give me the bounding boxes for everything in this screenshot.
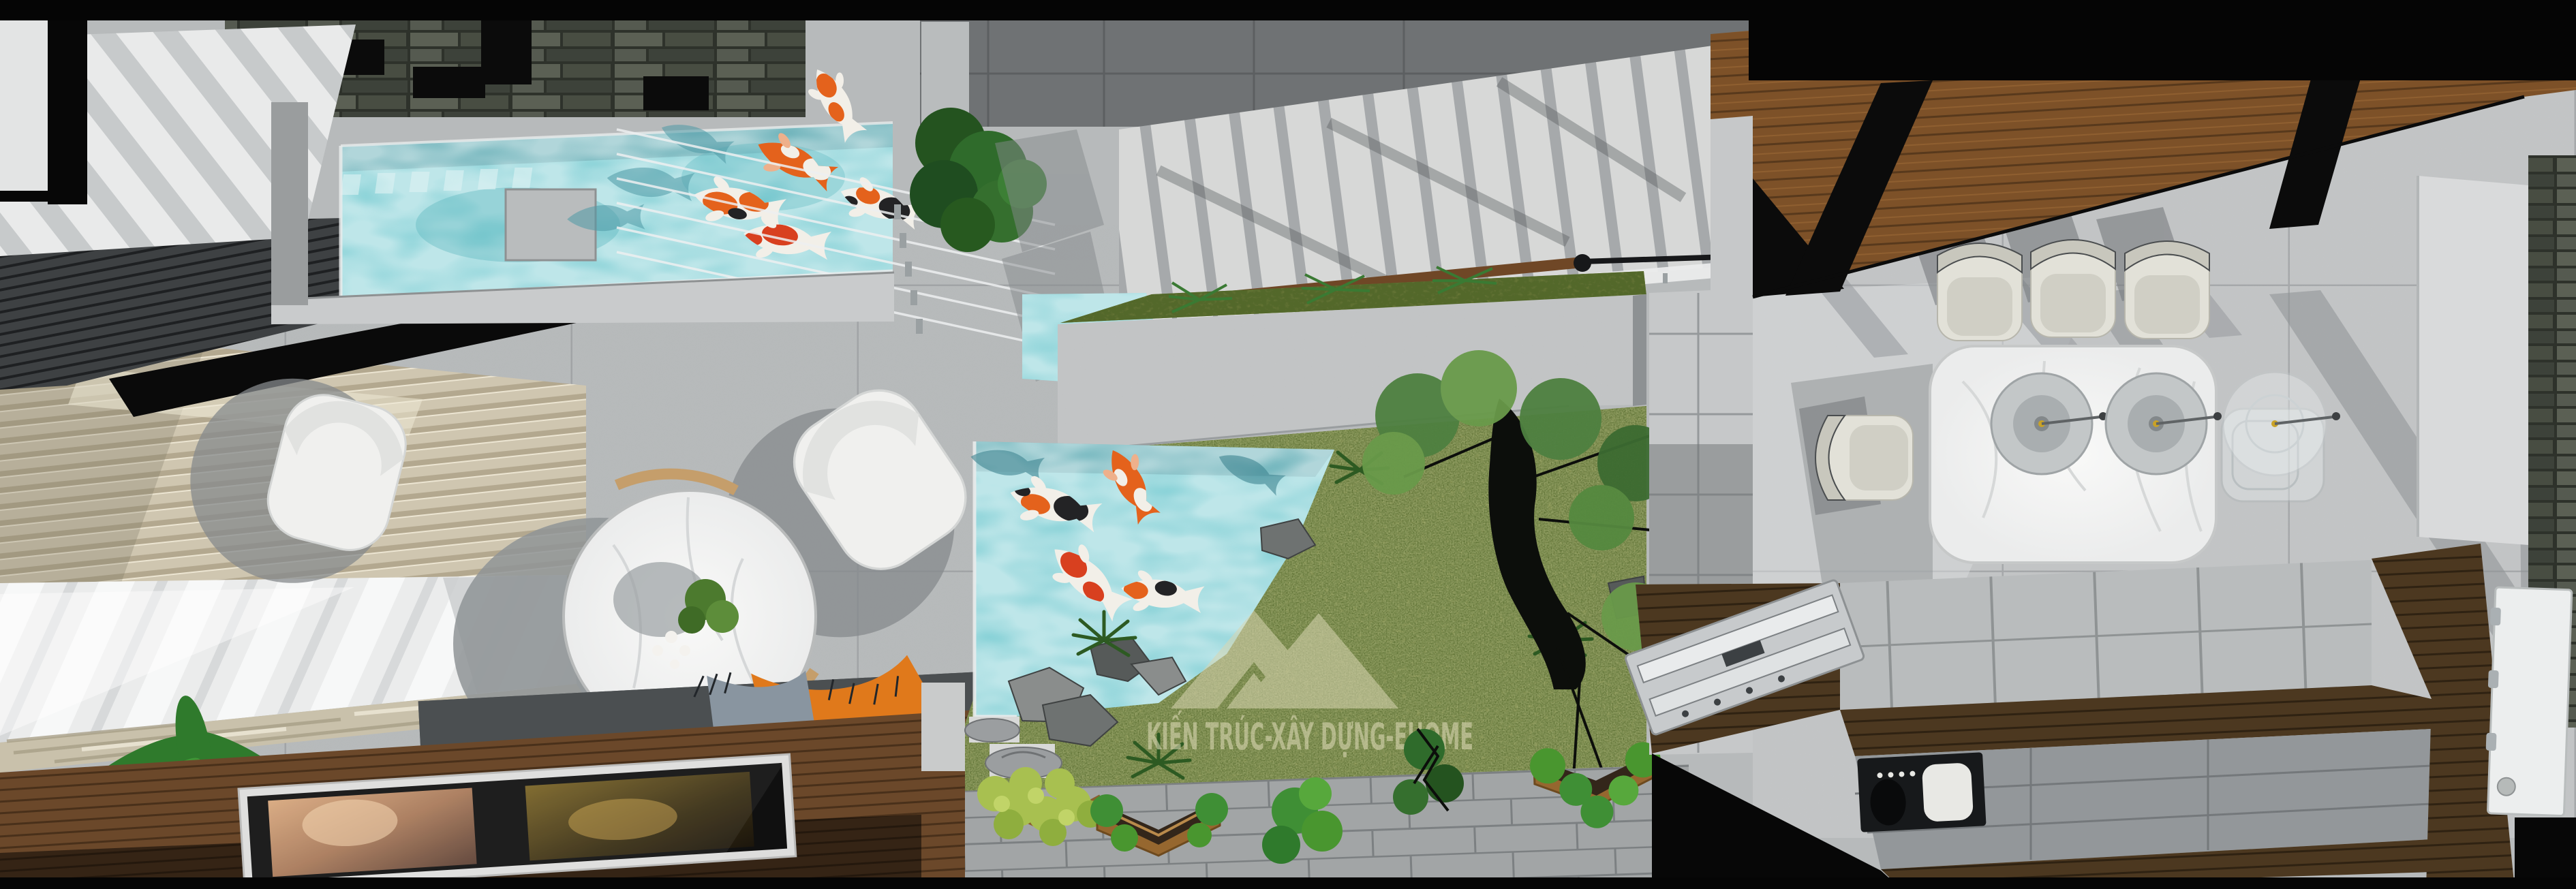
built-in-appliance [1857, 752, 1986, 832]
bottom-black-strip [0, 877, 2576, 889]
dining-chair [2031, 240, 2115, 337]
pendant-lights [1991, 372, 2340, 475]
top-black-strip [0, 0, 2576, 20]
deck-sliver [921, 771, 965, 889]
door-hinge [2488, 670, 2499, 689]
door-hinge [2486, 733, 2497, 751]
wall-shadow [1649, 444, 1753, 589]
dining-chair [1815, 416, 1913, 500]
scene: KIẾN TRÚC-XÂY DỰNG-EHOME [0, 0, 2576, 889]
dining-chair [1937, 243, 2022, 341]
white-door [2483, 587, 2572, 816]
door-hinge [2490, 608, 2501, 626]
dining-chair [2125, 241, 2209, 339]
door-knob [2497, 777, 2515, 796]
render-canvas: KIẾN TRÚC-XÂY DỰNG-EHOME [0, 0, 2576, 889]
white-partition [2418, 176, 2528, 545]
garden-wall-sliver [921, 683, 965, 773]
black-beam [48, 19, 87, 204]
entry-wall-strip [271, 102, 308, 305]
